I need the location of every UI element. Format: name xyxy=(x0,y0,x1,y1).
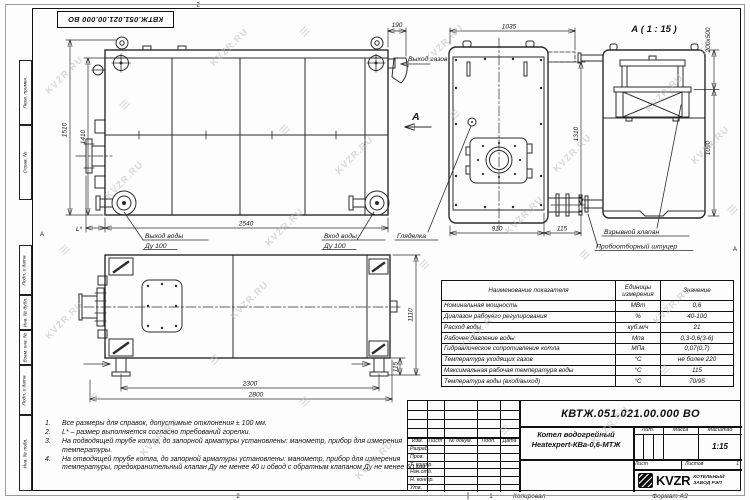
sheets-cell: Листов 1 xyxy=(682,459,742,469)
notes-block: 1.Все размеры для справок, допустимые от… xyxy=(45,420,429,474)
note-item: 3.На подводящей трубе котла, до запорной… xyxy=(45,438,429,455)
margin-box-vzam-inv: Взам. инв. № xyxy=(19,330,32,365)
margin-label: Перв. примен. xyxy=(23,77,28,109)
margin-box-perv-primen: Перв. примен. xyxy=(19,60,32,125)
inverted-doc-number: КВТЖ.051.021.00.000 ВО xyxy=(68,15,163,24)
rev-col-dokum: № докум. xyxy=(444,437,477,445)
spec-col-units: Единицыизмерения xyxy=(616,281,661,301)
product-name-line2: Heatexpert-КВа-0,6-МТЖ xyxy=(519,440,633,450)
margin-box-podp-data-2: Подп. и дата xyxy=(19,365,32,415)
rev-col-data: Дата xyxy=(500,437,519,445)
rev-col-podp: Подп. xyxy=(477,437,500,445)
role-nkontr: Н. контр. xyxy=(408,476,444,484)
margin-label: Взам. инв. № xyxy=(23,333,28,363)
rev-col-list: Лист xyxy=(427,437,444,445)
margin-label: Подп. и дата xyxy=(23,375,28,405)
sheets-value: 1 xyxy=(736,461,739,467)
rev-col-izm: Изм. xyxy=(408,437,427,445)
title-block: Изм. Лист № докум. Подп. Дата Разраб. Пр… xyxy=(407,400,741,491)
product-name-line1: Котел водогрейный xyxy=(519,430,633,440)
company-logo-text: KVZR xyxy=(656,473,690,488)
role-razrab: Разраб. xyxy=(408,445,444,453)
company-name: КОТЕЛЬНЫЙ ЗАВОД РЭП xyxy=(693,475,724,486)
spec-row: Расход водыкуб.м/ч21 xyxy=(442,322,734,333)
inverted-doc-number-box: КВТЖ.051.021.00.000 ВО xyxy=(57,11,174,28)
margin-box-podp-data-1: Подп. и дата xyxy=(19,245,32,295)
drawing-sheet: 1510 1410 2540 L* 190 Выход газов А Выхо… xyxy=(0,0,750,500)
scale-value: 1:15 xyxy=(698,434,742,459)
margin-box-inv-dubl: Инв. № дубл. xyxy=(19,295,32,330)
sheets-label: Листов xyxy=(685,461,703,467)
mass-label: Масса xyxy=(663,426,698,434)
doc-number: КВТЖ.051.021.00.000 ВО xyxy=(519,401,742,426)
scale-label: Масштаб xyxy=(698,426,742,434)
role-tkontr: Т. контр. xyxy=(408,461,444,468)
role-prov: Пров. xyxy=(408,453,444,461)
spec-row: Рабочее давление водыМпа0,3-0,6(3-6) xyxy=(442,333,734,344)
margin-label: Подп. и дата xyxy=(23,255,28,285)
company-logo-icon xyxy=(638,473,653,488)
spec-table: Наименование показателя Единицыизмерения… xyxy=(441,280,734,387)
spec-col-value: Значение xyxy=(661,281,734,301)
spec-row: Номинальная мощностьМВт0,6 xyxy=(442,301,734,312)
margin-box-sprav-no: Справ. № xyxy=(19,125,32,200)
margin-box-inv-podl: Инв. № подл. xyxy=(19,415,32,491)
role-nachotd: Нач.отд. xyxy=(408,468,444,476)
spec-row: Гидравлическое сопротивление котлаМПа0,0… xyxy=(442,344,734,355)
spec-row: Максимальная рабочая температура воды°С1… xyxy=(442,365,734,376)
role-utv: Утв. xyxy=(408,484,444,492)
sheet-label: Лист xyxy=(633,459,681,469)
margin-label: Справ. № xyxy=(23,152,28,174)
spec-header-row: Наименование показателя Единицыизмерения… xyxy=(442,281,734,301)
product-name: Котел водогрейный Heatexpert-КВа-0,6-МТЖ xyxy=(519,427,633,459)
note-item: 4.На отводящей трубе котла, до запорной … xyxy=(45,456,429,473)
spec-col-name: Наименование показателя xyxy=(442,281,616,301)
margin-label: Инв. № дубл. xyxy=(23,298,28,328)
spec-row: Диапазон рабочего регулирования%40-100 xyxy=(442,311,734,322)
lit-label: Лит. xyxy=(633,426,663,434)
margin-label: Инв. № подл. xyxy=(23,438,28,468)
spec-row: Температура уходящих газов°Сне более 220 xyxy=(442,354,734,365)
note-item: 2.L* – размер выполняется согласно требо… xyxy=(45,429,429,438)
note-item: 1.Все размеры для справок, допустимые от… xyxy=(45,420,429,429)
company-logo: KVZR КОТЕЛЬНЫЙ ЗАВОД РЭП xyxy=(633,469,742,492)
spec-row: Температура воды (вход/выход)°С70/95 xyxy=(442,376,734,387)
